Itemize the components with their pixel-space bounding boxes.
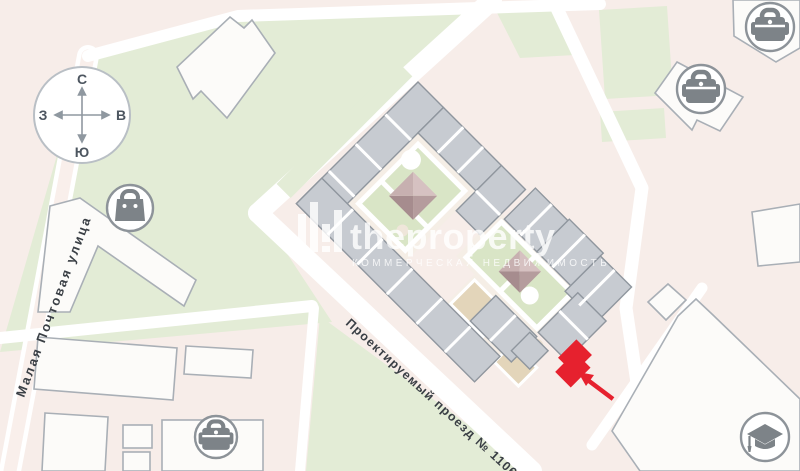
poi-marker-briefcase-3[interactable] [195,416,237,458]
poi-marker-bag[interactable] [107,185,153,231]
building-southwest-4 [123,425,152,448]
building-southwest-3 [42,413,108,471]
building-southwest-2 [184,346,253,378]
building-east [752,204,800,266]
watermark-tagline: КОММЕРЧЕСКАЯ НЕДВИЖИМОСТЬ [352,258,610,269]
watermark-brand: theproperty [350,216,556,257]
building-southwest-1 [34,337,177,400]
compass-rose: С Ю З В [34,67,130,163]
poi-marker-briefcase-1[interactable] [746,3,794,51]
compass-south: Ю [75,144,89,160]
compass-west: З [39,107,48,123]
building-southwest-5 [123,452,150,471]
compass-north: С [77,71,87,87]
map-canvas: Малая Почтовая улица Проектируемый проез… [0,0,800,471]
map-svg: Малая Почтовая улица Проектируемый проез… [0,0,800,471]
compass-east: В [116,107,126,123]
poi-marker-graduation[interactable] [741,413,789,461]
poi-marker-briefcase-2[interactable] [677,65,725,113]
